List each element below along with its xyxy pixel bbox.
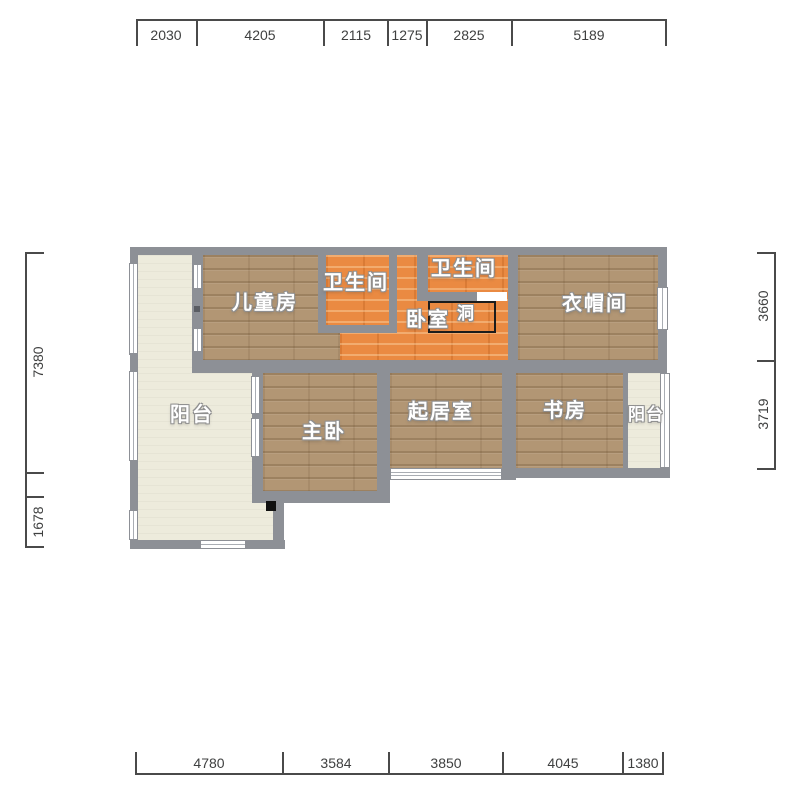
dim-value: 2030	[136, 27, 196, 43]
window	[129, 510, 138, 540]
window	[193, 264, 202, 289]
dim-value: 7380	[30, 332, 46, 392]
dim-value: 3584	[306, 755, 366, 771]
room-label-children: 儿童房	[205, 291, 325, 315]
wall-middle	[192, 360, 667, 373]
dim-value: 2825	[439, 27, 499, 43]
window	[129, 263, 138, 355]
wall-bath-right-s	[417, 292, 477, 301]
dim-tick	[665, 19, 667, 46]
entry-door-marker	[266, 501, 276, 511]
wall-top	[130, 247, 667, 255]
wall-living-study	[502, 360, 516, 480]
dim-tick	[323, 19, 325, 46]
dim-tick	[135, 752, 137, 775]
dim-tick	[757, 252, 776, 254]
dim-value: 4205	[230, 27, 290, 43]
dim-tick	[196, 19, 198, 46]
window	[657, 287, 668, 330]
window	[251, 418, 260, 457]
wall-master-right	[377, 360, 390, 503]
wall-left-outer	[130, 461, 138, 510]
dim-tick	[25, 472, 44, 474]
dim-tick	[388, 752, 390, 775]
dim-value: 4045	[533, 755, 593, 771]
room-label-living: 起居室	[391, 400, 491, 424]
dim-value: 1678	[30, 492, 46, 552]
dim-tick	[757, 360, 776, 362]
dim-tick	[502, 752, 504, 775]
room-label-master: 主卧	[284, 420, 364, 444]
room-label-bath-right: 卫生间	[425, 257, 503, 281]
door-opening	[477, 292, 507, 301]
window-living-bottom	[390, 468, 502, 480]
floor-plan: 儿童房 卫生间 卫生间 卧室 洞 衣帽间 阳台 主卧 起居室 书房 阳台 203…	[0, 0, 800, 800]
dim-value: 1275	[377, 27, 437, 43]
dim-value: 1380	[613, 755, 673, 771]
room-label-study: 书房	[525, 399, 605, 423]
balcony-left-floor-upper[interactable]	[138, 255, 192, 373]
dim-tick	[511, 19, 513, 46]
room-label-balcony-right: 阳台	[626, 403, 666, 427]
window	[200, 540, 246, 549]
dim-line	[135, 773, 664, 775]
room-label-cloakroom: 衣帽间	[545, 292, 645, 316]
dim-value: 3660	[755, 276, 771, 336]
window	[251, 376, 260, 414]
dim-value: 4780	[179, 755, 239, 771]
window	[193, 328, 202, 352]
window-divider	[194, 306, 200, 312]
dim-value: 5189	[559, 27, 619, 43]
room-label-bath-left: 卫生间	[317, 271, 395, 295]
dim-line	[25, 252, 27, 548]
wall-bottom-right	[502, 468, 670, 478]
dim-line	[136, 19, 667, 21]
wall-bath-left-s	[318, 325, 397, 333]
dim-value: 3719	[755, 384, 771, 444]
window	[129, 371, 138, 461]
wall-left-outer	[130, 247, 138, 263]
room-label-bedroom: 卧室	[396, 308, 460, 332]
room-label-hole: 洞	[452, 302, 480, 326]
dim-value: 3850	[416, 755, 476, 771]
dim-tick	[282, 752, 284, 775]
wall-cloakroom-left	[508, 247, 518, 373]
dim-tick	[25, 252, 44, 254]
dim-tick	[757, 468, 776, 470]
room-label-balcony-left: 阳台	[152, 403, 232, 427]
wall-left-outer	[130, 353, 138, 371]
